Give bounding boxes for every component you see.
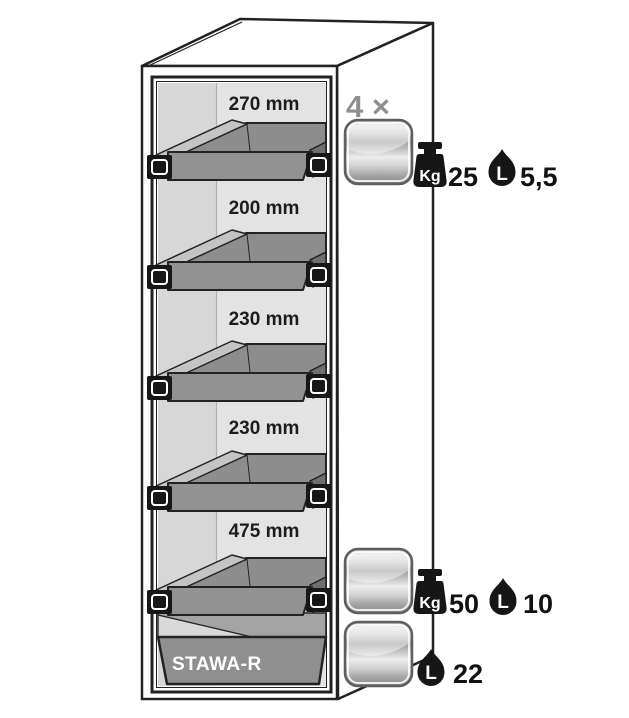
section-label-2: 200 mm [229,198,300,219]
weight-unit-2: Kg [419,595,440,612]
sump-label: STAWA-R [172,654,262,675]
volume-value-2: 10 [523,589,553,619]
drawer-front-icon-3 [345,622,412,686]
volume-value-1: 5,5 [520,162,558,192]
cabinet-diagram: 270 mm 200 mm 230 mm 230 mm 475 mm STAWA… [0,0,629,718]
volume-unit-1: L [496,164,508,185]
volume-icon-1: L [489,149,516,186]
section-label-4: 230 mm [229,418,300,439]
weight-value-2: 50 [449,589,479,619]
section-label-3: 230 mm [229,309,300,330]
volume-unit-3: L [425,663,437,684]
section-label-5: 475 mm [229,521,300,542]
volume-unit-2: L [497,592,509,613]
weight-value-1: 25 [448,162,478,192]
volume-icon-2: L [490,578,517,615]
drawer-front-icon-1 [345,120,412,184]
sump-tray: STAWA-R [158,637,326,684]
weight-unit-1: Kg [419,168,440,185]
section-label-1: 270 mm [229,94,300,115]
volume-value-3: 22 [453,659,483,689]
diagram-canvas: 270 mm 200 mm 230 mm 230 mm 475 mm STAWA… [0,0,629,718]
drawer-front-icon-2 [345,549,412,613]
